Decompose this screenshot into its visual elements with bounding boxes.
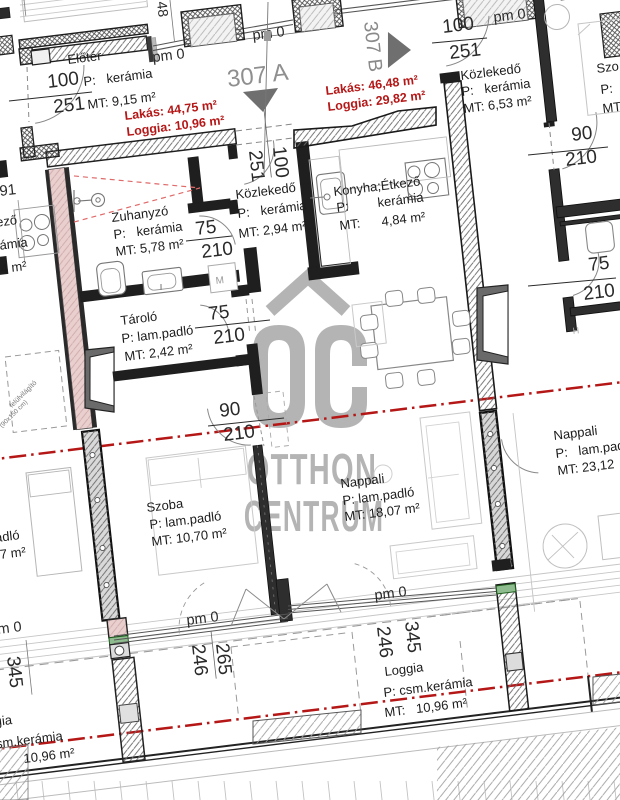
svg-text:345: 345 [2,655,26,689]
svg-text:48: 48 [154,0,172,18]
svg-text:Nappali: Nappali [553,423,598,443]
svg-text:P: kerámia: P: kerámia [237,198,308,221]
svg-text:Szoba: Szoba [146,496,185,515]
svg-text:210: 210 [564,146,598,171]
svg-text:210: 210 [222,421,256,446]
svg-text:265: 265 [211,642,235,676]
svg-text:H: H [572,325,580,336]
svg-text:pm 0: pm 0 [374,584,408,604]
svg-text:210: 210 [582,280,616,305]
svg-text:251: 251 [52,93,86,118]
svg-text:100: 100 [441,13,475,38]
svg-text:MT: 2,94 m²: MT: 2,94 m² [238,218,308,241]
svg-text:246: 246 [187,643,211,677]
svg-text:90: 90 [218,399,241,422]
svg-text:Tároló: Tároló [120,309,158,328]
svg-text:90: 90 [570,123,593,146]
svg-text:251: 251 [448,39,482,64]
svg-text:m 0: m 0 [0,619,22,638]
svg-text:100: 100 [268,145,292,179]
svg-text:210: 210 [212,324,246,349]
svg-text:210: 210 [200,238,234,263]
svg-text:ggia: ggia [0,712,13,730]
svg-text:kerámia: kerámia [0,234,29,255]
svg-text:75: 75 [587,253,610,276]
svg-text:Étkező: Étkező [0,212,18,232]
svg-text:P:: P: [336,199,350,215]
svg-text:Előtér: Előtér [67,48,103,67]
svg-text:MT: 10,96 m²: MT: 10,96 m² [384,695,469,720]
svg-text:10,96 m²: 10,96 m² [23,745,76,766]
svg-text:MT: 13,07 m²: MT: 13,07 m² [0,544,27,568]
svg-text:Közlekedő: Közlekedő [235,180,297,202]
svg-text:307 A: 307 A [226,59,290,93]
svg-text:pm 0: pm 0 [152,46,186,66]
svg-text:P:: P: [600,81,614,97]
svg-text:84 m²: 84 m² [0,258,28,277]
svg-text:Szo: Szo [596,58,620,76]
svg-text:MT: MT [602,99,620,116]
svg-text:MT:: MT: [339,216,361,233]
svg-text:91: 91 [0,181,17,200]
svg-text:Loggia: Loggia [384,659,425,679]
svg-text:P: kerámia: P: kerámia [83,66,154,89]
svg-text:75: 75 [207,302,230,325]
svg-text:4,84 m²: 4,84 m² [381,209,427,229]
svg-text:pm 0: pm 0 [186,609,220,629]
svg-text:75: 75 [194,217,217,240]
svg-text:307 B: 307 B [359,20,386,73]
svg-text:345: 345 [400,620,424,654]
svg-text:100: 100 [46,68,80,93]
svg-text:M: M [215,275,224,287]
svg-text:pm 0: pm 0 [493,6,527,26]
svg-text:246: 246 [372,625,396,659]
